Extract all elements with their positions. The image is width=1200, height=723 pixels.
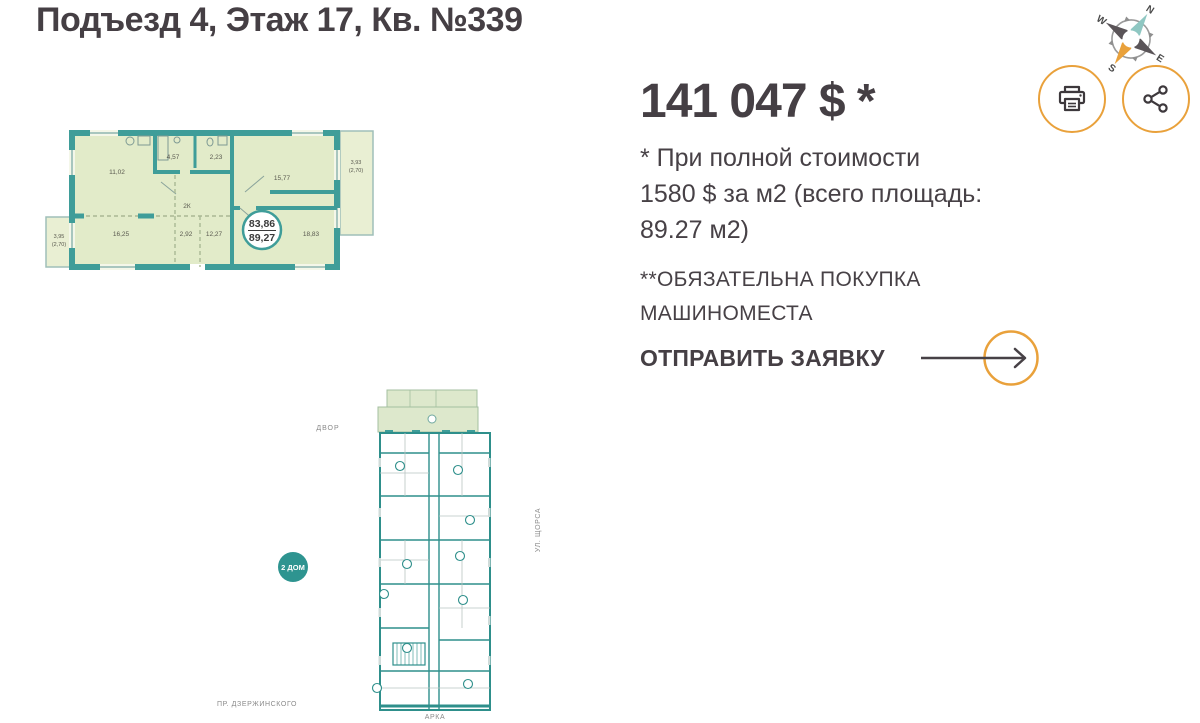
- room-label-hall-small: 2,92: [180, 231, 193, 238]
- yard-label: ДВОР: [316, 425, 339, 432]
- price-note-line: 89.27 м2): [640, 212, 982, 248]
- room-label-wc: 2,23: [210, 154, 223, 161]
- balcony-right-area: 3,93: [351, 160, 362, 166]
- house-number-badge: 2 ДОМ: [278, 552, 308, 582]
- total-area-value: 89,27: [249, 232, 275, 244]
- price-note-line: * При полной стоимости: [640, 140, 982, 176]
- apartment-floor-plan: 11,02 4,57 2,23 15,77 16,25 2К 2,92 12,2…: [40, 120, 375, 275]
- compass-south-label: S: [1106, 62, 1118, 75]
- building-site-plan: ДВОР ПР. ДЗЕРЖИНСКОГО АРКА УЛ. ЩОРСА 2 Д…: [200, 388, 560, 723]
- room-label-bottom-left: 16,25: [113, 231, 130, 238]
- room-label-bathroom: 4,57: [167, 154, 180, 161]
- price-note: * При полной стоимости 1580 $ за м2 (все…: [640, 140, 982, 248]
- print-button[interactable]: [1038, 65, 1106, 133]
- arrow-right-icon: [913, 329, 1043, 387]
- printer-icon: [1057, 85, 1087, 113]
- price: 141 047 $ *: [640, 74, 875, 129]
- room-label-kitchen-living: 11,02: [109, 169, 125, 176]
- street-bottom-label: ПР. ДЗЕРЖИНСКОГО: [217, 701, 297, 708]
- balcony-left-area-reduced: (2,70): [52, 242, 67, 248]
- parking-warning-line: МАШИНОМЕСТА: [640, 297, 921, 331]
- compass-north-label: N: [1144, 3, 1156, 16]
- compass-west-label: W: [1094, 14, 1108, 29]
- room-label-hall: 12,27: [206, 231, 223, 238]
- apartment-detail-page: Подъезд 4, Этаж 17, Кв. №339 N E S W: [0, 0, 1200, 723]
- selected-apartment-region[interactable]: [378, 390, 478, 433]
- compass-east-label: E: [1154, 52, 1166, 65]
- balcony-left-area: 3,95: [54, 234, 65, 240]
- balcony-right-area-reduced: (2,70): [349, 168, 364, 174]
- balcony-right: [340, 131, 373, 235]
- page-title: Подъезд 4, Этаж 17, Кв. №339: [36, 1, 523, 40]
- submit-request-button[interactable]: ОТПРАВИТЬ ЗАЯВКУ: [640, 329, 1043, 387]
- apartment-type-label: 2К: [183, 203, 191, 210]
- room-label-bedroom: 18,83: [303, 231, 320, 238]
- living-area-value: 83,86: [249, 218, 275, 230]
- house-badge-label: 2 ДОМ: [281, 563, 305, 572]
- arch-label: АРКА: [425, 714, 446, 721]
- parking-warning-line: **ОБЯЗАТЕЛЬНА ПОКУПКА: [640, 263, 921, 297]
- area-badge: 83,86 89,27: [243, 211, 281, 249]
- parking-warning: **ОБЯЗАТЕЛЬНА ПОКУПКА МАШИНОМЕСТА: [640, 263, 921, 331]
- share-icon: [1142, 84, 1170, 114]
- price-note-line: 1580 $ за м2 (всего площадь:: [640, 176, 982, 212]
- share-button[interactable]: [1122, 65, 1190, 133]
- building-outline: [380, 433, 490, 710]
- submit-request-label: ОТПРАВИТЬ ЗАЯВКУ: [640, 345, 885, 372]
- street-right-label: УЛ. ЩОРСА: [535, 508, 542, 552]
- room-label-top-right: 15,77: [274, 175, 291, 182]
- apartment-area: [70, 131, 339, 269]
